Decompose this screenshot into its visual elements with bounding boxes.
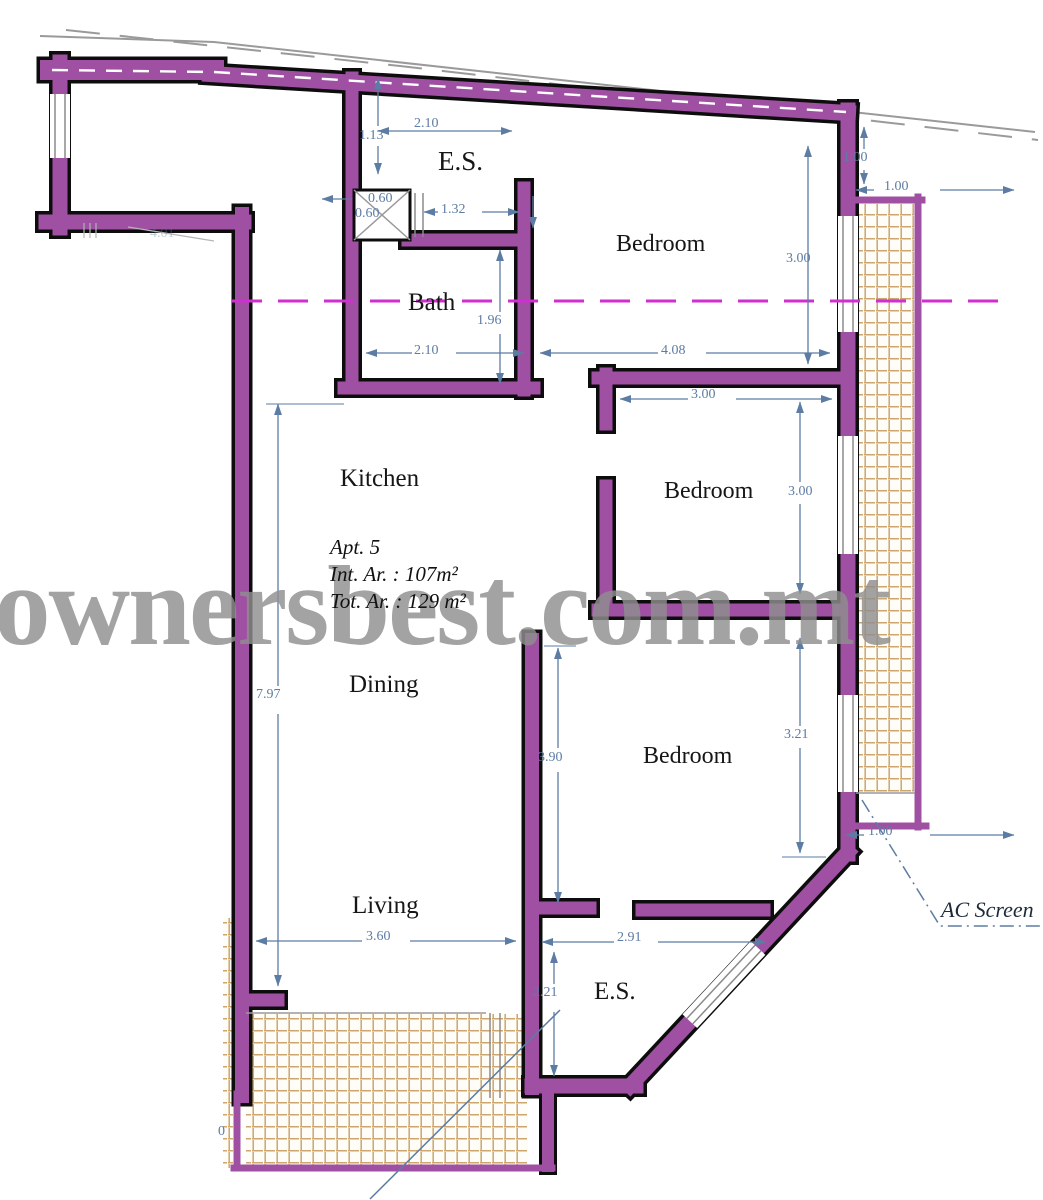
dim-entry-top-width: 2.10 [414,116,439,132]
dim-es-bottom-depth: 2.21 [533,985,558,1001]
dim-bedroom-middle-width: 3.00 [691,387,716,403]
apartment-internal-area: Int. Ar. : 107m² [330,561,466,588]
room-label-bedroom-middle: Bedroom [664,478,753,505]
room-label-kitchen: Kitchen [340,465,419,493]
apartment-info: Apt. 5 Int. Ar. : 107m² Tot. Ar. : 129 m… [330,534,466,615]
dim-bedroom-middle-depth: 3.00 [788,484,813,500]
room-label-bedroom-top: Bedroom [616,231,705,258]
room-label-es-bottom: E.S. [594,978,636,1006]
balcony-hatch [223,203,914,1168]
dim-bedroom-bottom-depth: 3.21 [784,727,809,743]
room-label-dining: Dining [349,671,418,699]
dim-kitchen-dining-depth: 7.97 [256,687,281,703]
dim-entry-width: 4.01 [150,226,175,242]
dim-hall-depth: 3.90 [538,750,563,766]
dim-living-width: 3.60 [366,929,391,945]
room-label-bedroom-bottom: Bedroom [643,743,732,770]
dim-bath-width: 2.10 [414,343,439,359]
dim-ac-right-setback-v: 1.00 [843,150,868,166]
room-label-living: Living [352,892,419,920]
ac-screen-note: AC Screen [941,897,1034,923]
apartment-total-area: Tot. Ar. : 129 m² [330,588,466,615]
floor-plan-page: ownersbest.com.mt E.S. Bedroom Bath Kitc… [0,0,1043,1200]
dim-entry-top-depth: 1.13 [359,128,384,144]
dim-shaft-width: 0.60 [368,191,393,207]
dim-shaft-depth: 0.60 [355,206,380,222]
apartment-label: Apt. 5 [330,534,466,561]
dim-ac-right-width: 1.00 [868,824,893,840]
dim-bath-depth: 1.96 [477,313,502,329]
dim-bedroom-top-depth: 3.00 [786,251,811,267]
dim-es-bottom-width: 2.91 [617,930,642,946]
room-label-bath: Bath [408,289,455,317]
room-label-es-top: E.S. [438,146,483,177]
dim-left-partial: 0 [218,1124,225,1140]
dim-hall-opening: 1.32 [441,202,466,218]
watermark: ownersbest.com.mt [0,542,1043,672]
dim-bedroom-top-width: 4.08 [661,343,686,359]
dim-ac-right-setback-h: 1.00 [884,179,909,195]
